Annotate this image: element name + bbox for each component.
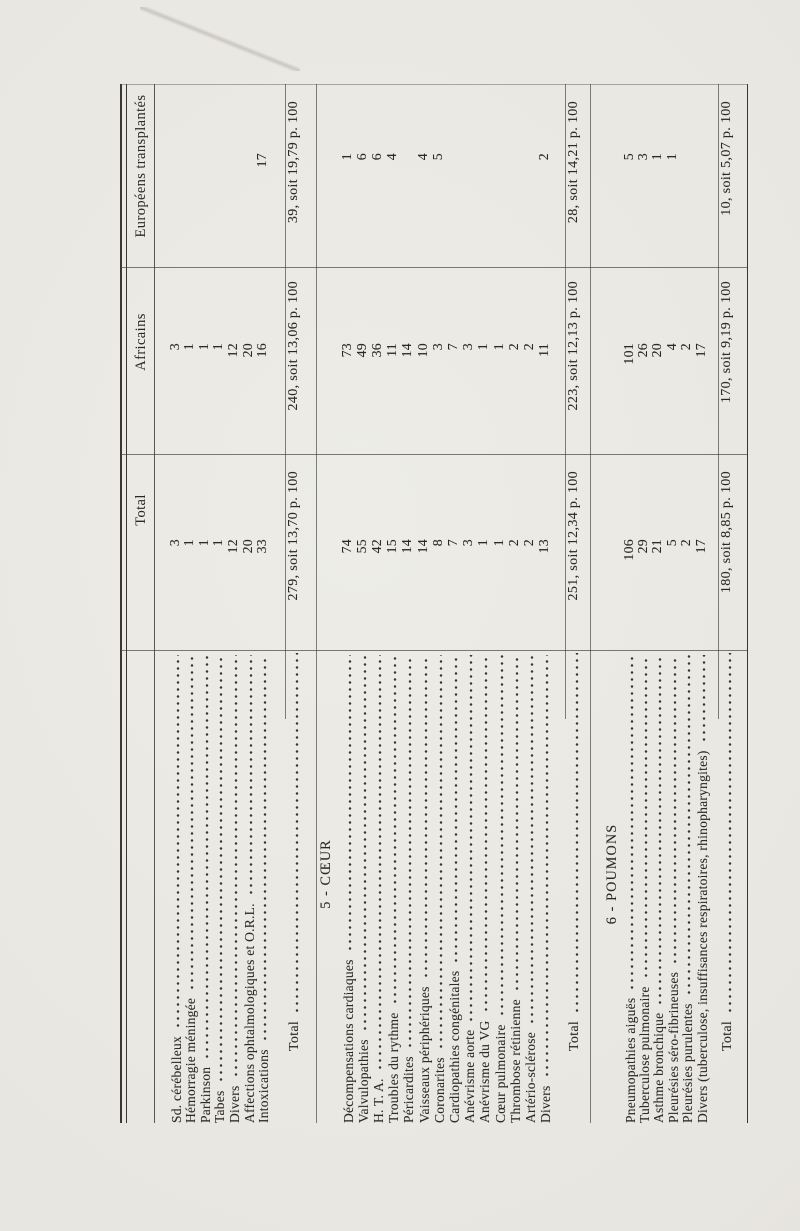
dotted-leader xyxy=(262,655,268,1042)
cell-africains: 17 xyxy=(693,343,710,453)
table-top-double-rule-outer xyxy=(120,84,122,1123)
dotted-leader xyxy=(657,655,663,1006)
total-cell-europeens: 39, soit 19,79 p. 100 xyxy=(286,101,303,351)
cell-total: 17 xyxy=(693,539,710,649)
dotted-leader xyxy=(453,655,459,964)
dotted-leader xyxy=(233,655,239,1079)
dotted-leader xyxy=(377,655,383,1071)
header-underline-rule xyxy=(154,84,155,1123)
dotted-leader xyxy=(189,655,195,991)
column-header-europeens-transplantes: Européens transplantés xyxy=(133,95,153,238)
dotted-leader xyxy=(643,655,649,979)
total-cell-europeens: 10, soit 5,07 p. 100 xyxy=(719,101,736,351)
section-heading: 6 - POUMONS xyxy=(604,824,621,924)
dotted-leader xyxy=(423,655,429,979)
cell-europeens: 4 xyxy=(384,153,401,263)
dotted-leader xyxy=(218,655,224,1083)
row-label: Intoxications xyxy=(256,1049,271,1123)
column-header-africains: Africains xyxy=(133,313,153,371)
dotted-leader xyxy=(347,655,353,952)
total-cell-europeens: 28, soit 14,21 p. 100 xyxy=(566,101,583,351)
total-row-label: Total xyxy=(567,1021,583,1051)
table-right-border xyxy=(121,84,748,85)
dotted-leader xyxy=(204,655,210,1060)
dotted-leader xyxy=(672,655,678,965)
cell-total: 33 xyxy=(254,539,271,649)
total-row-label: Total xyxy=(720,1021,736,1051)
section-heading: 5 - CŒUR xyxy=(318,839,335,909)
table-bottom-rule xyxy=(747,84,749,1123)
dotted-leader xyxy=(529,655,535,1025)
cell-europeens: 5 xyxy=(430,153,447,263)
dotted-leader xyxy=(248,655,254,896)
dotted-leader xyxy=(468,655,474,1023)
table-top-double-rule-inner xyxy=(126,84,128,1123)
dotted-leader xyxy=(392,655,398,1005)
table-row: Intoxications xyxy=(254,651,271,1123)
dotted-leader xyxy=(514,655,520,992)
dotted-leader xyxy=(362,655,368,1032)
section-separator-rule xyxy=(590,84,591,1123)
column-divider-africains-europeens xyxy=(121,267,748,268)
row-label: Divers (tuberculose, insuffisances respi… xyxy=(695,750,710,1123)
section-separator-rule xyxy=(316,84,317,1123)
dotted-leader xyxy=(686,655,692,996)
scanned-page: Total Africains Européens transplantés S… xyxy=(0,0,800,1231)
dotted-leader xyxy=(544,655,550,1079)
rotated-table-page: Total Africains Européens transplantés S… xyxy=(0,0,800,1231)
table-row: Divers (tuberculose, insuffisances respi… xyxy=(693,651,710,1123)
total-row-label: Total xyxy=(287,1021,303,1051)
row-label: Divers xyxy=(538,1086,553,1124)
dotted-leader xyxy=(629,655,635,991)
dotted-leader xyxy=(499,655,505,1017)
dotted-leader xyxy=(175,655,181,1029)
paper-crease-mark xyxy=(140,7,300,71)
cell-africains: 11 xyxy=(536,343,553,453)
dotted-leader xyxy=(483,655,489,1014)
cell-europeens: 1 xyxy=(664,153,681,263)
cell-europeens: 17 xyxy=(254,153,271,263)
column-header-total: Total xyxy=(133,494,153,526)
dotted-leader xyxy=(438,655,444,1050)
dotted-leader xyxy=(701,655,707,743)
cell-total: 13 xyxy=(536,539,553,649)
cell-africains: 16 xyxy=(254,343,271,453)
column-divider-total-africains xyxy=(121,454,748,455)
cell-europeens: 2 xyxy=(536,153,553,263)
table-row: Divers xyxy=(536,651,553,1123)
dotted-leader xyxy=(407,655,413,1049)
